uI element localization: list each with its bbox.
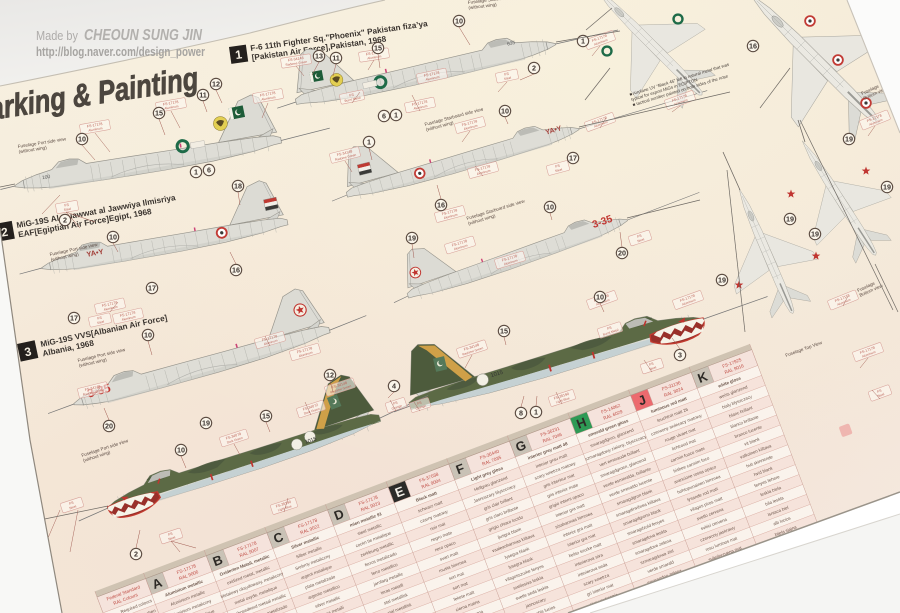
svg-text:16: 16	[232, 266, 240, 275]
svg-text:19: 19	[811, 230, 819, 239]
svg-text:19: 19	[718, 276, 726, 285]
svg-text:10: 10	[501, 107, 509, 116]
svg-text:1: 1	[194, 168, 198, 177]
svg-text:20: 20	[105, 422, 113, 431]
svg-text:17: 17	[70, 314, 78, 323]
svg-text:10: 10	[144, 331, 152, 340]
svg-text:Made by: Made by	[36, 28, 78, 43]
svg-text:17: 17	[148, 284, 156, 293]
svg-text:10: 10	[596, 293, 604, 302]
svg-text:18: 18	[234, 182, 242, 191]
svg-text:10: 10	[177, 446, 185, 455]
svg-text:http://blog.naver.com/design_p: http://blog.naver.com/design_power	[36, 45, 205, 59]
svg-text:10: 10	[455, 17, 463, 26]
svg-text:17: 17	[569, 154, 577, 163]
svg-text:CHEOUN SUNG JIN: CHEOUN SUNG JIN	[84, 27, 203, 44]
svg-text:16: 16	[749, 42, 757, 51]
svg-text:19: 19	[883, 183, 891, 192]
svg-text:6: 6	[207, 166, 211, 175]
svg-text:15: 15	[262, 412, 270, 421]
svg-text:16: 16	[437, 201, 445, 210]
svg-text:12: 12	[326, 371, 334, 380]
svg-text:1: 1	[534, 408, 538, 417]
svg-text:11: 11	[199, 91, 207, 100]
svg-text:2: 2	[532, 64, 536, 73]
svg-text:15: 15	[155, 109, 163, 118]
svg-text:19: 19	[786, 215, 794, 224]
svg-text:12: 12	[212, 80, 220, 89]
svg-text:20: 20	[618, 249, 626, 258]
svg-text:4: 4	[392, 382, 396, 391]
svg-text:15: 15	[500, 327, 508, 336]
svg-text:13: 13	[315, 52, 323, 61]
svg-text:15: 15	[374, 44, 382, 53]
svg-text:3: 3	[678, 351, 682, 360]
svg-text:19: 19	[408, 234, 416, 243]
svg-text:19: 19	[845, 135, 853, 144]
svg-text:10: 10	[546, 203, 554, 212]
svg-text:1: 1	[394, 111, 398, 120]
svg-text:8: 8	[519, 409, 523, 418]
svg-text:10: 10	[109, 233, 117, 242]
svg-text:19: 19	[202, 419, 210, 428]
svg-text:6: 6	[382, 112, 386, 121]
svg-text:2: 2	[134, 550, 138, 559]
svg-text:10: 10	[78, 135, 86, 144]
svg-text:11: 11	[332, 54, 340, 63]
svg-text:2: 2	[63, 216, 67, 225]
svg-text:1: 1	[367, 138, 371, 147]
